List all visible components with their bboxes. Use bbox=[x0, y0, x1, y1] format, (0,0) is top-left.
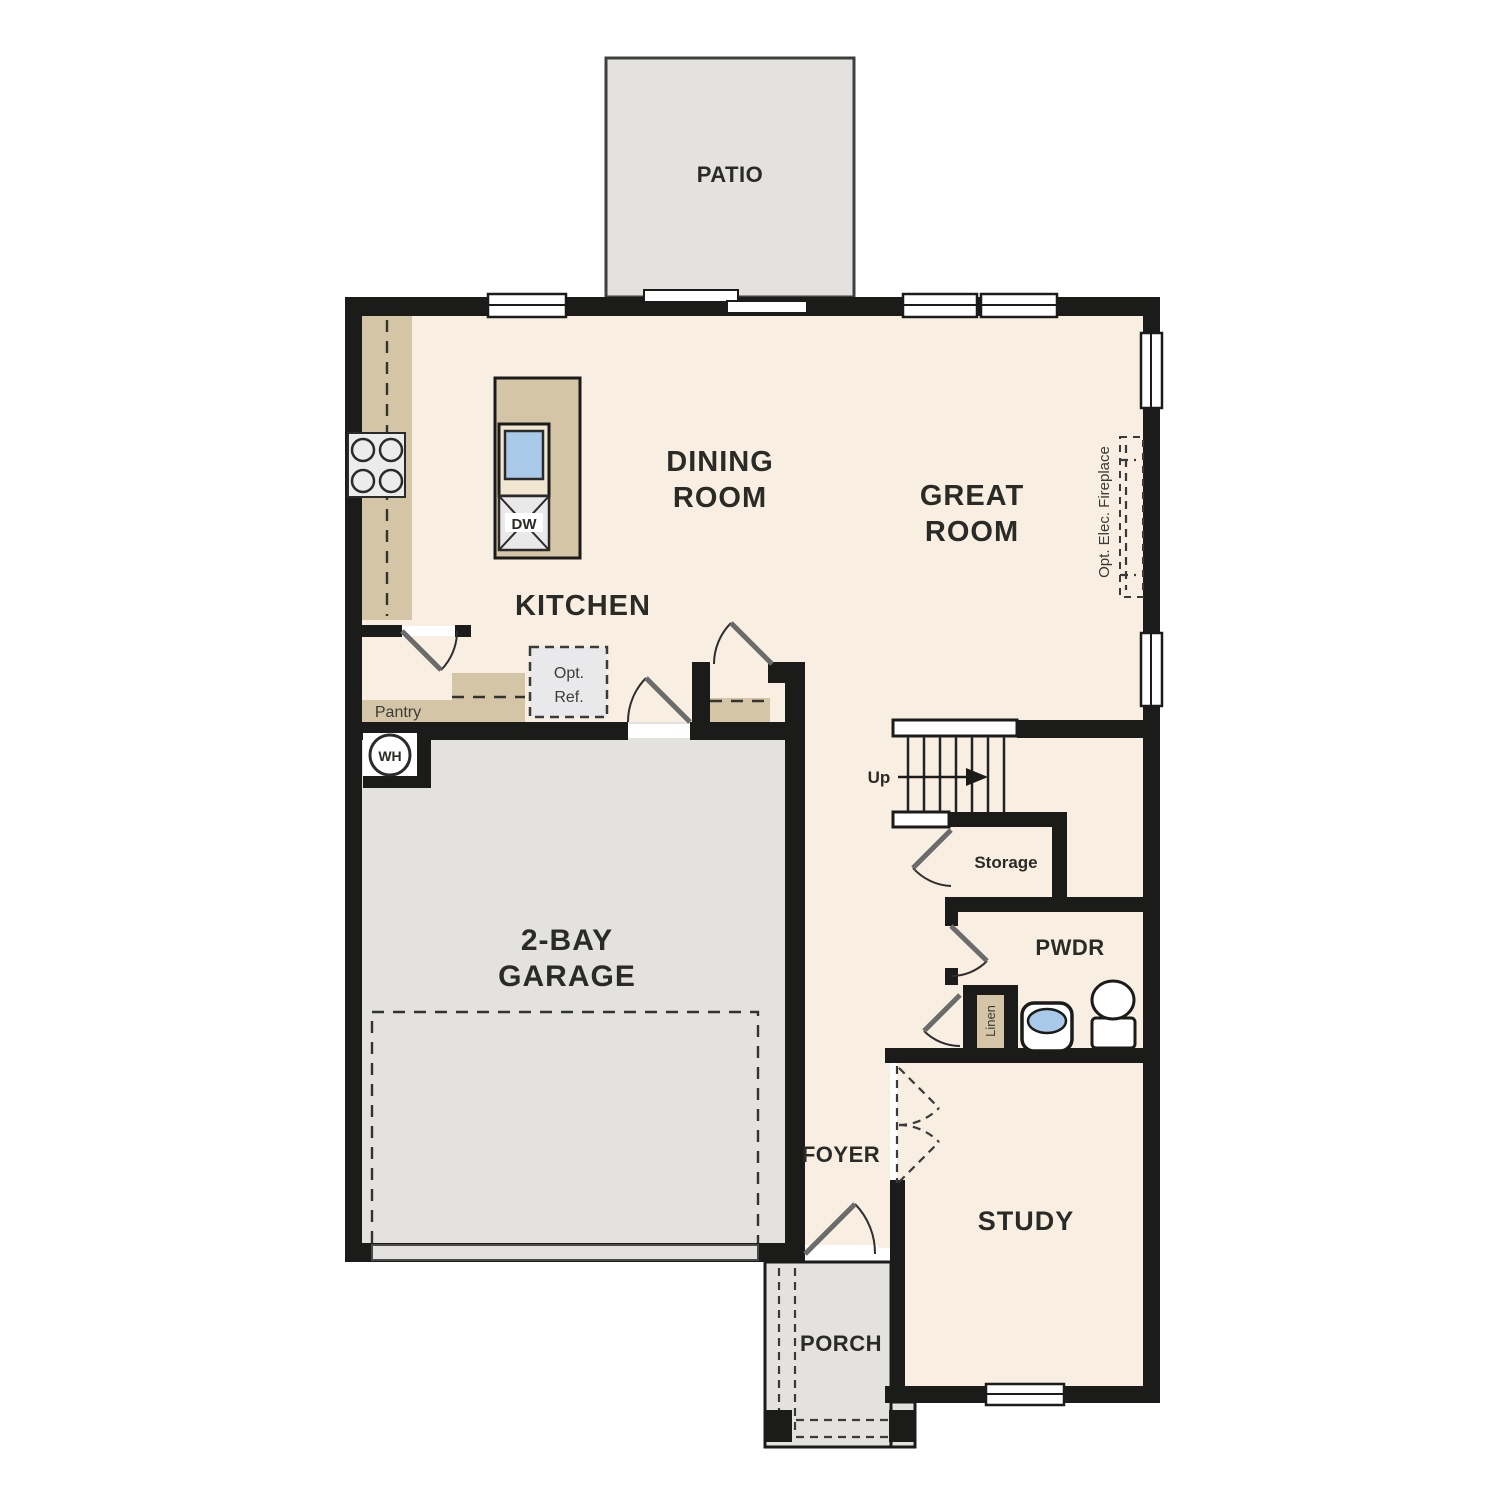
opt-ref-label-line1: Opt. bbox=[554, 665, 584, 682]
mudroom-niche-sill bbox=[710, 698, 770, 722]
foyer-label: FOYER bbox=[802, 1142, 880, 1167]
linen-label: Linen bbox=[983, 1005, 998, 1037]
window-top-1 bbox=[488, 294, 566, 317]
window-study bbox=[986, 1384, 1064, 1405]
pwdr-sink bbox=[1022, 1003, 1072, 1051]
great-room-label-line2: ROOM bbox=[925, 516, 1019, 548]
optional-refrigerator: Opt. Ref. bbox=[530, 647, 607, 717]
stair-stringer-top bbox=[893, 720, 1017, 736]
study-label: STUDY bbox=[978, 1206, 1075, 1236]
patio-label: PATIO bbox=[697, 162, 763, 187]
stairs-up-label: Up bbox=[868, 768, 891, 787]
dishwasher: DW bbox=[499, 496, 549, 550]
kitchen-counter-lower bbox=[452, 673, 525, 723]
wall-right bbox=[1143, 297, 1160, 1403]
kitchen-island: DW bbox=[495, 378, 580, 558]
stove-cooktop bbox=[348, 433, 405, 497]
garage-label-line1: 2-BAY bbox=[521, 924, 613, 957]
kitchen-sink bbox=[505, 431, 543, 479]
garage-door-panel bbox=[372, 1245, 758, 1260]
wall-hall-bottom bbox=[945, 897, 1152, 912]
dining-room-label-line2: ROOM bbox=[673, 482, 767, 514]
pwdr-label: PWDR bbox=[1035, 935, 1104, 960]
dining-room-label-line1: DINING bbox=[666, 446, 774, 478]
kitchen-label: KITCHEN bbox=[515, 590, 651, 622]
water-heater: WH bbox=[363, 733, 417, 776]
wall-greatroom-bottom bbox=[1017, 720, 1143, 738]
wall-stub-mudroom-right bbox=[768, 662, 788, 683]
fireplace-label: Opt. Elec. Fireplace bbox=[1096, 446, 1113, 578]
wall-study-left bbox=[890, 1180, 905, 1386]
window-top-3 bbox=[981, 294, 1057, 317]
window-right-2 bbox=[1141, 633, 1162, 706]
linen-closet: Linen bbox=[963, 985, 1018, 1056]
garage-label-line2: GARAGE bbox=[498, 960, 636, 993]
storage-label: Storage bbox=[974, 853, 1037, 872]
stair-stringer-bottom bbox=[893, 812, 949, 827]
wall-pwdr-jamb-top bbox=[945, 912, 958, 926]
wall-kitchen-bottom-right bbox=[710, 722, 788, 740]
porch-label: PORCH bbox=[800, 1331, 882, 1356]
opt-ref-label-line2: Ref. bbox=[554, 689, 583, 706]
window-right-1 bbox=[1141, 333, 1162, 408]
wall-study-top bbox=[885, 1048, 1160, 1063]
window-top-2 bbox=[903, 294, 977, 317]
water-heater-label: WH bbox=[378, 748, 401, 764]
wall-storage-top bbox=[947, 812, 1067, 827]
pantry-label: Pantry bbox=[375, 704, 421, 721]
wall-stub-mudroom-left bbox=[692, 662, 710, 728]
wall-pantry-top bbox=[362, 625, 402, 637]
floorplan-drawing: DW Opt. Ref. Linen bbox=[0, 0, 1500, 1500]
great-room-label-line1: GREAT bbox=[920, 480, 1024, 512]
wall-wh-bottom bbox=[363, 776, 431, 788]
toilet bbox=[1092, 981, 1135, 1048]
floorplan-page: DW Opt. Ref. Linen bbox=[0, 0, 1500, 1500]
dishwasher-label: DW bbox=[512, 516, 538, 533]
